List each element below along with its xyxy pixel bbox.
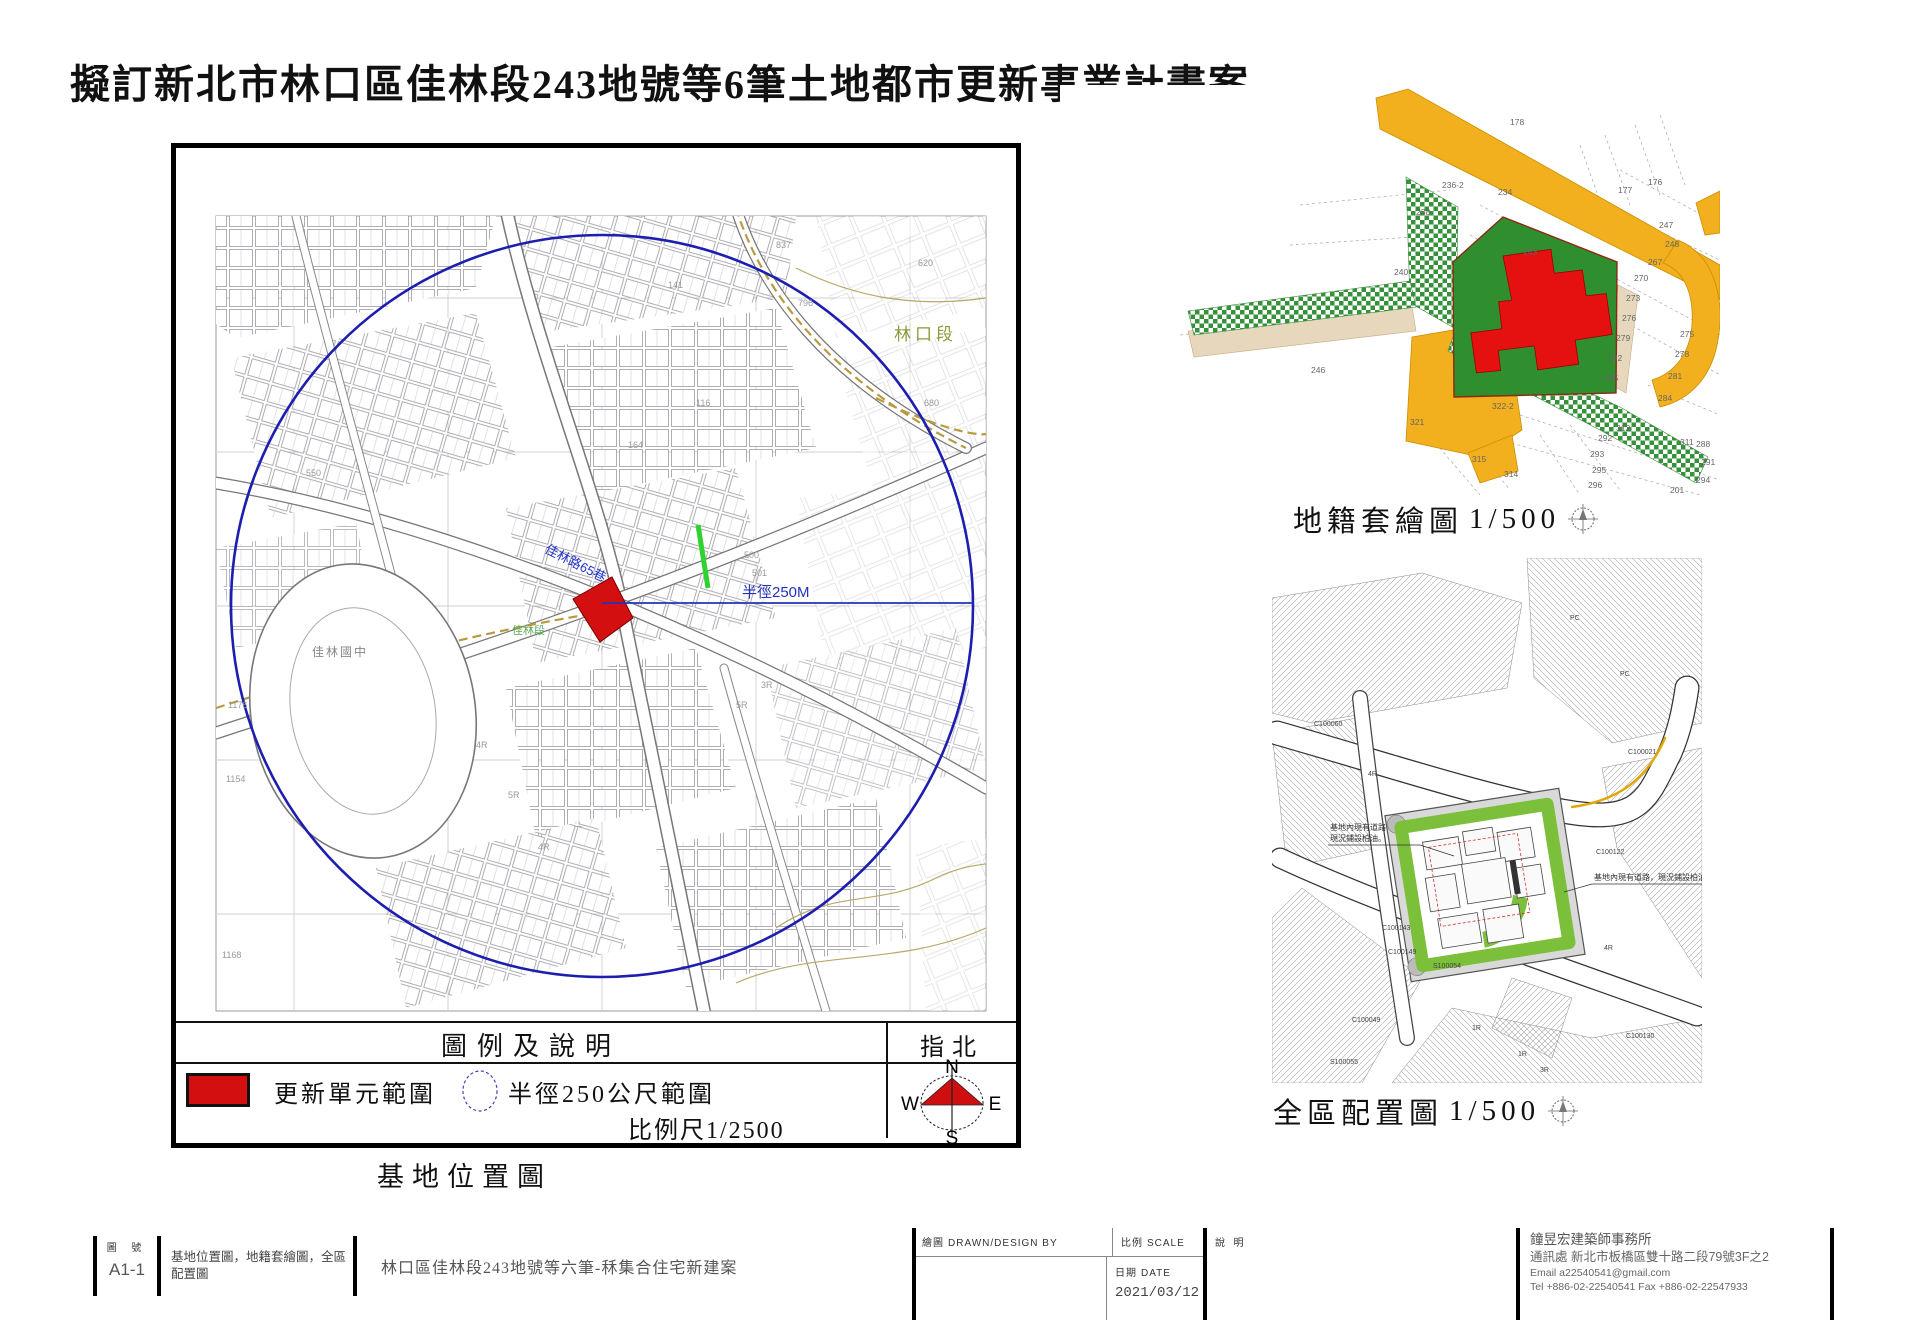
scale-label-cjk: 比例 [1121, 1238, 1143, 1249]
svg-text:246: 246 [1311, 365, 1325, 375]
site-location-map: 半徑250M 佳林路65巷 林口段 佳林國中 佳林段 1176115411685… [176, 148, 1016, 1021]
svg-text:1154: 1154 [226, 774, 245, 784]
svg-text:240: 240 [1394, 267, 1408, 277]
svg-text:PC: PC [1620, 671, 1630, 678]
legend-label-radius: 半徑250公尺範圍 [508, 1074, 715, 1109]
svg-text:291: 291 [1701, 457, 1715, 467]
svg-text:248: 248 [1665, 239, 1679, 249]
compass-e: E [989, 1094, 1002, 1115]
legend-label-update: 更新單元範圍 [274, 1074, 436, 1109]
firm-name: 鐘昱宏建築師事務所 [1530, 1231, 1830, 1249]
svg-text:1176: 1176 [228, 700, 247, 710]
legend-scale: 比例尺1/2500 [628, 1110, 785, 1145]
svg-text:281: 281 [1668, 371, 1682, 381]
svg-text:116: 116 [696, 398, 710, 408]
svg-text:500: 500 [744, 550, 759, 560]
annotation-left-line2: 現況鋪設柏油。 [1330, 833, 1386, 843]
svg-text:680: 680 [924, 398, 939, 408]
titleblock-notes: 說 明 [1203, 1228, 1516, 1320]
titleblock-meta: 繪圖 DRAWN/DESIGN BY 比例 SCALE 日期 DATE 2021… [912, 1228, 1203, 1320]
drawn-label-cjk: 繪圖 [922, 1238, 944, 1249]
svg-text:C100060: C100060 [1314, 721, 1343, 728]
drawn-cell: 繪圖 DRAWN/DESIGN BY [916, 1228, 1113, 1256]
site-map-caption: 基地位置圖 [377, 1155, 552, 1194]
svg-text:278: 278 [1675, 349, 1689, 359]
north-compass: N W E S [896, 1055, 1012, 1145]
svg-text:PC: PC [1570, 615, 1580, 622]
svg-text:1R: 1R [1518, 1051, 1527, 1058]
svg-text:C100049: C100049 [1352, 1017, 1381, 1024]
svg-text:C100149: C100149 [1388, 949, 1417, 956]
drawn-label-en: DRAWN/DESIGN BY [948, 1238, 1058, 1249]
legend-top-line [176, 1021, 1016, 1023]
mini-compass-icon [1546, 1094, 1580, 1128]
svg-text:164: 164 [628, 440, 643, 450]
svg-text:321: 321 [1410, 417, 1424, 427]
legend-header: 圖例及說明 [176, 1026, 886, 1063]
svg-text:294: 294 [1696, 475, 1710, 485]
svg-text:4R: 4R [476, 740, 488, 750]
titleblock-project: 林口區佳林段243地號等六筆-秝集合住宅新建案 [353, 1236, 912, 1296]
compass-w: W [901, 1094, 919, 1115]
date-label-en: DATE [1141, 1268, 1171, 1279]
svg-text:285: 285 [1604, 373, 1618, 383]
svg-text:273: 273 [1626, 293, 1640, 303]
svg-text:796: 796 [798, 298, 813, 308]
site-plan-caption: 全區配置圖 1/500 [1273, 1090, 1580, 1132]
svg-text:312: 312 [1616, 423, 1630, 433]
cadastral-caption-text: 地籍套繪圖 [1293, 498, 1463, 540]
date-label-cjk: 日期 [1115, 1268, 1137, 1279]
svg-text:S100055: S100055 [1330, 1059, 1358, 1066]
svg-text:5R: 5R [736, 700, 748, 710]
svg-text:C100021: C100021 [1628, 749, 1657, 756]
district-label: 林口段 [894, 325, 957, 344]
svg-text:314: 314 [1504, 469, 1518, 479]
project-name-text: 林口區佳林段243地號等六筆-秝集合住宅新建案 [381, 1254, 737, 1278]
svg-text:201: 201 [1670, 485, 1684, 495]
svg-text:141: 141 [668, 280, 683, 290]
svg-text:C100122: C100122 [1596, 849, 1625, 856]
svg-text:C100130: C100130 [1626, 1033, 1655, 1040]
svg-text:315: 315 [1472, 454, 1486, 464]
titleblock-end-bar [1830, 1228, 1834, 1320]
svg-text:282: 282 [1608, 353, 1622, 363]
scale-cell: 比例 SCALE [1113, 1228, 1203, 1256]
firm-address: 通訊處 新北市板橋區雙十路二段79號3F之2 [1530, 1249, 1830, 1266]
svg-text:4R: 4R [1604, 945, 1613, 952]
site-plan-map: 基地內現有道路 現況鋪設柏油。 基地內現有道路，現況鋪設柏油。 C100060C… [1272, 558, 1702, 1083]
svg-text:311: 311 [1680, 437, 1694, 447]
svg-text:270: 270 [1634, 273, 1648, 283]
svg-text:4R: 4R [1368, 771, 1377, 778]
svg-text:238: 238 [1416, 207, 1430, 217]
cadastral-overlay-map: 178176177236-223423824024624324724826727… [1060, 85, 1720, 497]
svg-text:292: 292 [1598, 433, 1612, 443]
annotation-left-line1: 基地內現有道路 [1330, 822, 1386, 832]
site-plan-caption-scale: 1/500 [1449, 1095, 1540, 1128]
segment-label: 佳林段 [512, 623, 545, 637]
svg-text:837: 837 [776, 240, 791, 250]
cadastral-caption: 地籍套繪圖 1/500 [1293, 498, 1600, 540]
svg-text:3R: 3R [761, 680, 773, 690]
svg-text:176: 176 [1648, 177, 1662, 187]
svg-text:620: 620 [918, 258, 933, 268]
drawing-names-text: 基地位置圖，地籍套繪圖，全區配置圖 [171, 1249, 353, 1283]
titleblock-sheetno: 圖 號 A1-1 [93, 1236, 157, 1296]
svg-text:S100054: S100054 [1433, 963, 1461, 970]
svg-text:550: 550 [306, 468, 321, 478]
radius-label: 半徑250M [742, 584, 810, 601]
compass-n: N [945, 1057, 959, 1078]
school-label: 佳林國中 [312, 644, 368, 659]
svg-text:284: 284 [1658, 393, 1672, 403]
firm-tel: Tel +886-02-22540541 Fax +886-02-2254793… [1530, 1280, 1830, 1294]
svg-text:276: 276 [1622, 313, 1636, 323]
titleblock-firm: 鐘昱宏建築師事務所 通訊處 新北市板橋區雙十路二段79號3F之2 Email a… [1516, 1228, 1830, 1320]
svg-text:322-2: 322-2 [1492, 401, 1514, 411]
svg-text:4R: 4R [538, 842, 550, 852]
svg-text:5R: 5R [508, 790, 520, 800]
sheetno-label: 圖 號 [97, 1239, 157, 1254]
svg-text:C100143: C100143 [1382, 925, 1411, 932]
svg-text:234: 234 [1498, 187, 1512, 197]
svg-text:236-2: 236-2 [1442, 180, 1464, 190]
date-cell: 日期 DATE 2021/03/12 [1107, 1257, 1203, 1320]
cadastral-caption-scale: 1/500 [1469, 503, 1560, 536]
svg-text:3R: 3R [1540, 1067, 1549, 1074]
svg-text:243: 243 [1523, 247, 1537, 257]
svg-text:288: 288 [1696, 439, 1710, 449]
svg-text:501: 501 [752, 568, 767, 578]
svg-text:295: 295 [1592, 465, 1606, 475]
annotation-right: 基地內現有道路，現況鋪設柏油。 [1594, 872, 1702, 882]
svg-text:296: 296 [1588, 480, 1602, 490]
compass-s: S [946, 1128, 959, 1145]
scale-label-en: SCALE [1147, 1238, 1185, 1249]
legend-circle-icon [458, 1068, 502, 1114]
firm-email: Email a22540541@gmail.com [1530, 1266, 1830, 1280]
site-plan-caption-text: 全區配置圖 [1273, 1090, 1443, 1132]
svg-text:1168: 1168 [222, 950, 241, 960]
mini-compass-icon [1566, 502, 1600, 536]
svg-text:247: 247 [1659, 220, 1673, 230]
svg-text:1R: 1R [1472, 1025, 1481, 1032]
note-label: 說 明 [1207, 1228, 1516, 1249]
svg-text:279: 279 [1616, 333, 1630, 343]
svg-text:267: 267 [1648, 257, 1662, 267]
drawn-value-cell [916, 1257, 1107, 1320]
date-value: 2021/03/12 [1115, 1285, 1203, 1301]
svg-text:177: 177 [1618, 185, 1632, 195]
legend-swatch-update [186, 1073, 250, 1107]
svg-text:178: 178 [1510, 117, 1524, 127]
sheetno-value: A1-1 [97, 1260, 157, 1280]
svg-text:275: 275 [1680, 329, 1694, 339]
svg-text:293: 293 [1590, 449, 1604, 459]
titleblock-drawing-names: 基地位置圖，地籍套繪圖，全區配置圖 [157, 1236, 353, 1296]
